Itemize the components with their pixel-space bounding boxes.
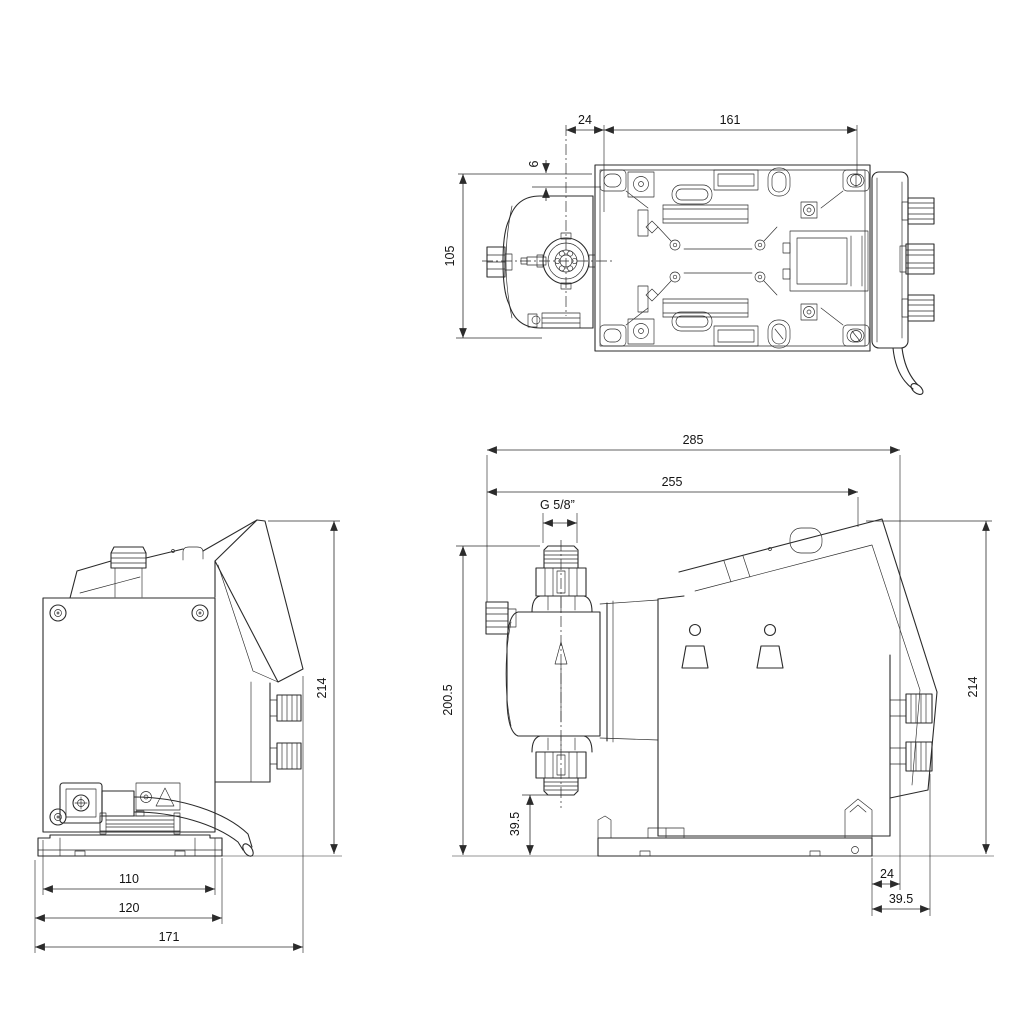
dim-rear-214: 214: [315, 678, 329, 699]
rear-cable-connector: [60, 783, 255, 858]
side-view-pump-drawing: [486, 519, 937, 856]
dim-side-285: 285: [683, 433, 704, 447]
drawing-canvas: 24 161 6 105: [0, 0, 1024, 1024]
warning-triangle-icon: [156, 788, 174, 806]
side-view: 285 255 G 5/8” 200.5 39.5 214 24 39.5: [441, 433, 994, 916]
rear-base: [38, 835, 222, 856]
rear-top-fitting: [111, 547, 146, 568]
rear-connector-knobs: [270, 695, 301, 769]
rear-top-housing: [70, 561, 111, 598]
dim-rear-110: 110: [119, 872, 139, 886]
rear-mounting-plate: [43, 598, 215, 832]
side-control-panel: [679, 519, 937, 798]
top-view-pump-drawing: [482, 165, 934, 397]
dim-side-thread: G 5/8”: [540, 498, 575, 512]
dim-side-24: 24: [880, 867, 894, 881]
top-baseplate: [595, 165, 870, 351]
top-view: 24 161 6 105: [443, 113, 934, 397]
rear-view-pump-drawing: [38, 520, 303, 858]
dim-rear-120: 120: [119, 901, 140, 915]
dim-side-200-5: 200.5: [441, 684, 455, 715]
side-top-valve: [532, 546, 592, 612]
pump-dimensional-drawing: 24 161 6 105: [0, 0, 1024, 1024]
dim-side-214: 214: [966, 677, 980, 698]
rear-view-dimensions: 110 120 171 214: [35, 521, 342, 953]
dim-top-24: 24: [578, 113, 592, 127]
dim-top-161: 161: [720, 113, 741, 127]
dim-top-6: 6: [527, 160, 541, 167]
side-view-dimensions: 285 255 G 5/8” 200.5 39.5 214 24 39.5: [441, 433, 994, 916]
side-connector-knobs: [890, 694, 932, 771]
rear-view: 110 120 171 214: [35, 520, 342, 953]
side-dosing-head: [506, 599, 658, 836]
top-control-unit: [872, 172, 934, 397]
dim-side-255: 255: [662, 475, 683, 489]
side-base: [598, 799, 872, 856]
dim-rear-171: 171: [159, 930, 180, 944]
dim-side-39-5-right: 39.5: [889, 892, 913, 906]
side-main-body: [658, 596, 890, 836]
dim-side-39-5-left: 39.5: [508, 812, 522, 836]
top-view-dimensions: 24 161 6 105: [443, 113, 857, 338]
dim-top-105: 105: [443, 246, 457, 267]
side-bottom-valve: [532, 736, 592, 795]
rear-plate-screws: [50, 605, 208, 825]
rear-warning-label: [136, 783, 180, 810]
